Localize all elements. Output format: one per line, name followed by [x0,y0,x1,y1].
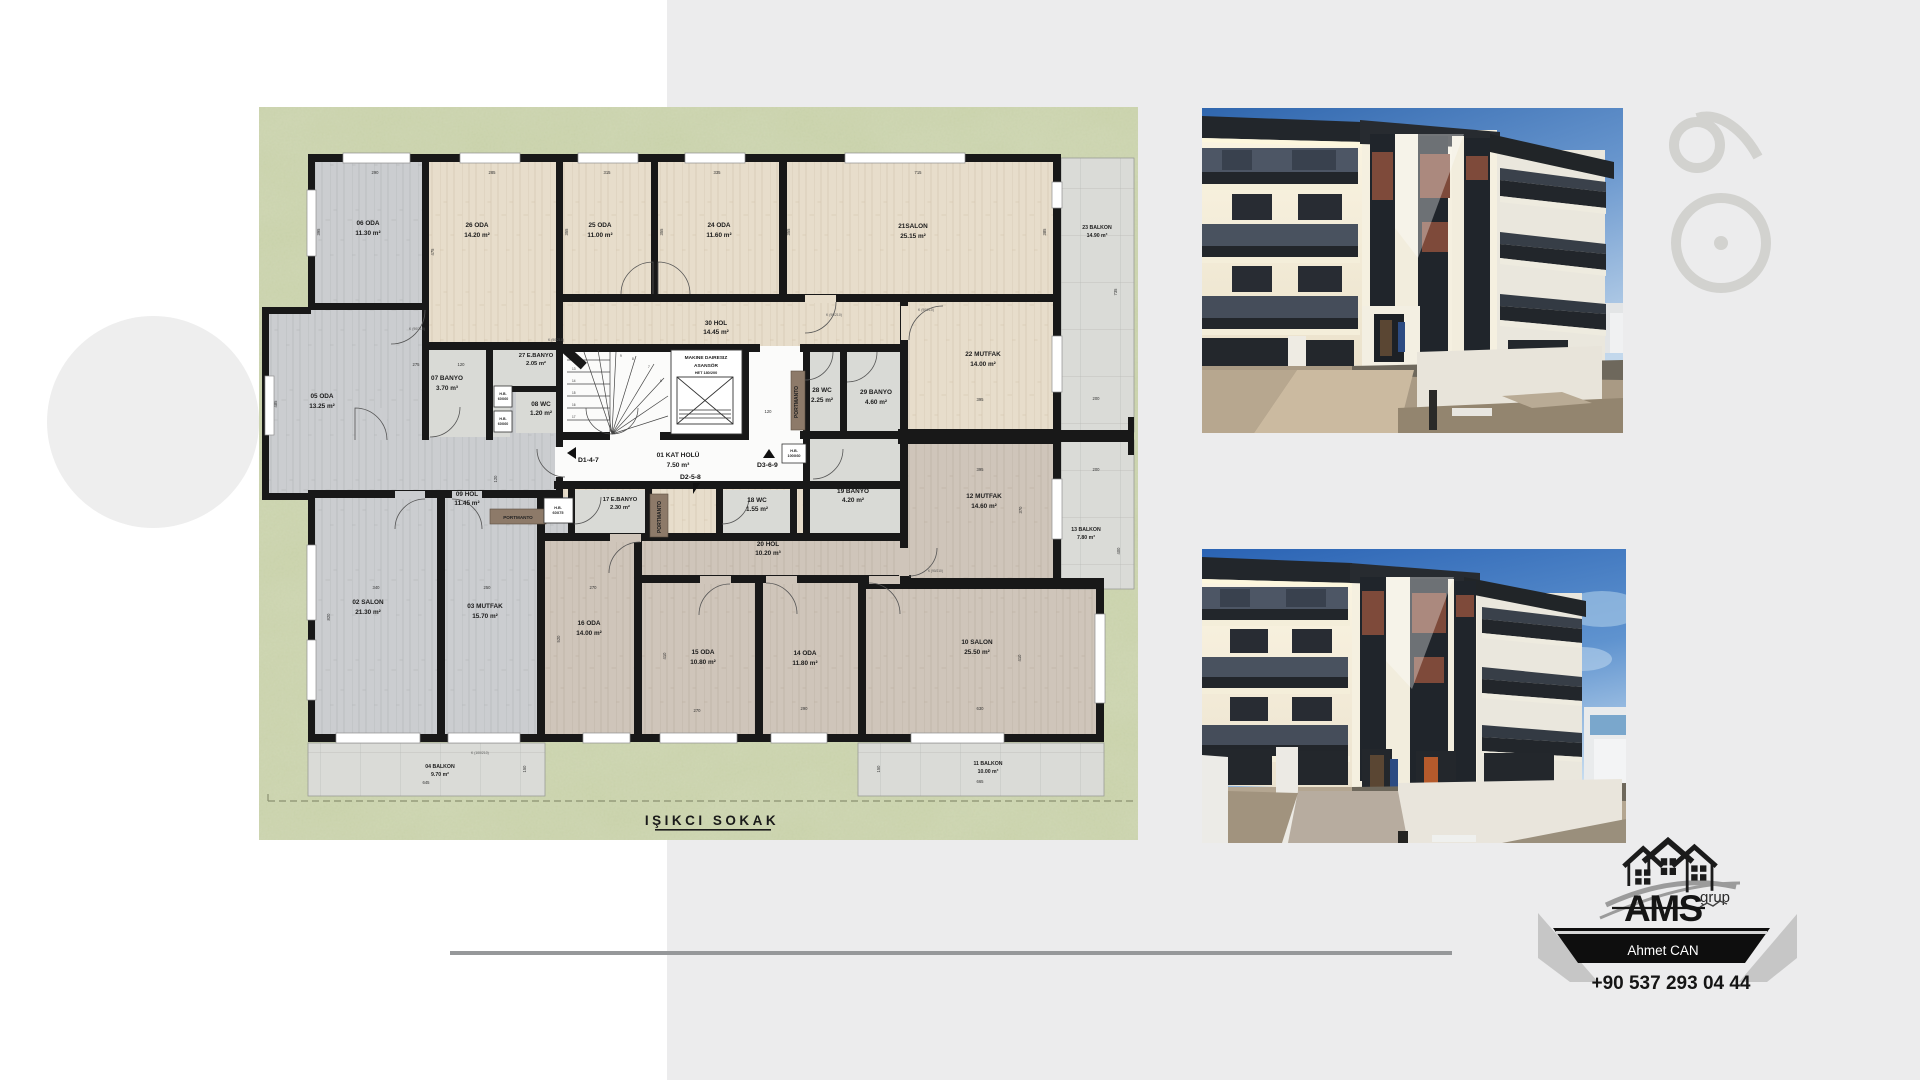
svg-text:14.00 m²: 14.00 m² [970,361,996,368]
svg-text:16 ODA: 16 ODA [577,620,600,627]
svg-text:7: 7 [648,365,650,369]
svg-text:26 ODA: 26 ODA [465,222,488,229]
svg-text:7.50 m³: 7.50 m³ [667,462,691,469]
svg-text:4.60 m²: 4.60 m² [865,399,887,406]
svg-text:395: 395 [316,228,321,236]
svg-text:335: 335 [714,170,722,175]
svg-text:2.25 m²: 2.25 m² [811,397,833,404]
svg-text:K (100/210): K (100/210) [471,751,489,755]
svg-text:13.25 m²: 13.25 m² [309,403,335,410]
svg-text:15 ODA: 15 ODA [691,649,714,656]
svg-text:07 BANYO: 07 BANYO [431,375,463,382]
svg-text:60X60: 60X60 [498,422,508,426]
svg-text:20 HOL: 20 HOL [757,541,779,548]
svg-text:14.90 m³: 14.90 m³ [1087,233,1108,239]
svg-text:09 HOL: 09 HOL [456,491,478,498]
svg-text:10.20 m³: 10.20 m³ [755,550,781,557]
svg-text:340: 340 [373,585,381,590]
svg-text:H.B.: H.B. [499,417,506,421]
svg-text:9.70 m²: 9.70 m² [431,772,449,778]
svg-text:410: 410 [662,652,667,660]
svg-text:H.B.: H.B. [499,392,506,396]
svg-text:14.45 m²: 14.45 m² [703,329,729,336]
svg-text:27 E.BANYO: 27 E.BANYO [519,353,554,359]
svg-text:2.30 m²: 2.30 m² [610,504,630,511]
svg-text:11.00 m²: 11.00 m² [587,232,612,239]
svg-text:IŞIKCI SOKAK: IŞIKCI SOKAK [645,813,779,828]
svg-text:10 SALON: 10 SALON [961,639,993,646]
svg-text:17 E.BANYO: 17 E.BANYO [603,497,638,503]
svg-text:150: 150 [876,765,881,773]
svg-text:355: 355 [786,228,791,236]
svg-text:200: 200 [1093,467,1101,472]
svg-text:11.45 m²: 11.45 m² [454,500,479,507]
svg-text:485: 485 [273,400,278,408]
svg-text:11 BALKON: 11 BALKON [973,761,1002,767]
svg-text:385: 385 [1042,228,1047,236]
svg-text:8: 8 [632,357,634,361]
svg-text:30 HOL: 30 HOL [705,320,727,327]
svg-text:355: 355 [659,228,664,236]
svg-text:11.30 m²: 11.30 m² [355,230,380,237]
svg-text:10.00 m³: 10.00 m³ [978,769,999,775]
svg-text:18 WC: 18 WC [747,497,767,504]
svg-text:24 ODA: 24 ODA [707,222,730,229]
svg-text:01 KAT HOLÜ: 01 KAT HOLÜ [657,450,700,459]
svg-text:02 SALON: 02 SALON [352,599,384,606]
svg-text:15: 15 [572,391,576,395]
svg-text:10.80 m²: 10.80 m² [690,659,716,666]
svg-text:285: 285 [489,170,497,175]
svg-text:21SALON: 21SALON [898,223,928,230]
svg-text:H.B.: H.B. [554,506,562,510]
svg-text:6: 6 [660,379,662,383]
svg-text:120: 120 [458,362,466,367]
svg-text:06 ODA: 06 ODA [356,220,379,227]
svg-text:MAKINE DAIRESIZ: MAKINE DAIRESIZ [685,355,728,361]
svg-text:1.55 m²: 1.55 m² [746,506,768,513]
svg-text:395: 395 [977,467,985,472]
svg-text:17: 17 [572,415,576,419]
svg-text:03 MUTFAK: 03 MUTFAK [467,603,503,610]
svg-text:04 BALKON: 04 BALKON [425,764,455,770]
svg-text:D1-4-7: D1-4-7 [578,457,599,464]
svg-text:475: 475 [430,248,435,256]
svg-text:11.80 m²: 11.80 m² [792,660,817,667]
svg-text:HET 180/200: HET 180/200 [695,371,717,375]
svg-text:PORTMANTO: PORTMANTO [794,386,800,418]
svg-text:100X60: 100X60 [787,454,800,458]
svg-text:200: 200 [1093,396,1101,401]
svg-text:25.50 m²: 25.50 m² [964,649,990,656]
svg-text:270: 270 [694,708,702,713]
svg-text:K (90/210): K (90/210) [918,308,934,312]
svg-text:+90 537 293 04 44: +90 537 293 04 44 [1591,973,1750,994]
svg-text:19 BANYO: 19 BANYO [837,488,869,495]
svg-text:290: 290 [801,706,809,711]
svg-text:21.30 m²: 21.30 m² [355,609,381,616]
svg-text:250: 250 [484,585,492,590]
svg-text:355: 355 [564,228,569,236]
svg-text:290: 290 [372,170,380,175]
svg-text:Ahmet CAN: Ahmet CAN [1627,943,1698,958]
svg-text:D3-6-9: D3-6-9 [757,462,778,469]
svg-text:13 BALKON: 13 BALKON [1071,527,1101,533]
svg-text:22 MUTFAK: 22 MUTFAK [965,351,1001,358]
svg-text:715: 715 [915,170,923,175]
svg-text:28 WC: 28 WC [812,387,832,394]
svg-text:14.20 m²: 14.20 m² [464,232,490,239]
svg-text:16: 16 [572,403,576,407]
svg-text:12 MUTFAK: 12 MUTFAK [966,493,1002,500]
svg-text:PORTMANTO: PORTMANTO [657,501,663,533]
svg-text:410: 410 [1017,654,1022,662]
svg-text:820: 820 [326,613,331,621]
svg-text:13: 13 [572,367,576,371]
svg-text:3.70 m³: 3.70 m³ [436,385,458,392]
svg-text:120: 120 [765,409,773,414]
svg-text:665: 665 [977,779,985,784]
svg-text:15.70 m²: 15.70 m² [472,613,498,620]
svg-text:1.20 m²: 1.20 m² [530,410,552,417]
svg-text:735: 735 [1113,288,1118,296]
svg-text:120: 120 [493,475,498,483]
svg-text:29 BANYO: 29 BANYO [860,389,892,396]
svg-text:395: 395 [977,397,985,402]
svg-text:370: 370 [1018,506,1023,514]
svg-text:7.80 m³: 7.80 m³ [1077,535,1095,541]
svg-text:14.00 m²: 14.00 m² [576,630,602,637]
svg-text:9: 9 [620,354,622,358]
svg-text:150: 150 [522,765,527,773]
svg-text:11.60 m²: 11.60 m² [706,232,731,239]
svg-text:4.20 m²: 4.20 m² [842,497,864,504]
svg-text:645: 645 [423,780,431,785]
svg-text:270: 270 [590,585,598,590]
svg-text:D2-5-8: D2-5-8 [680,474,701,481]
svg-text:K (90/210): K (90/210) [928,569,943,573]
svg-text:520: 520 [556,635,561,643]
svg-text:400: 400 [1116,547,1121,555]
svg-text:630: 630 [977,706,985,711]
svg-text:05 ODA: 05 ODA [310,393,333,400]
svg-text:ASANSÖR: ASANSÖR [694,362,719,369]
svg-text:2.05 m²: 2.05 m² [526,360,546,367]
svg-text:K (90/210): K (90/210) [409,327,425,331]
svg-text:25.15 m²: 25.15 m² [900,233,926,240]
svg-text:K (90/210): K (90/210) [548,338,564,342]
svg-text:23 BALKON: 23 BALKON [1082,225,1112,231]
svg-text:14: 14 [572,379,576,383]
svg-text:H.B.: H.B. [790,449,798,453]
svg-text:PORTMANTO: PORTMANTO [503,515,533,520]
svg-text:25 ODA: 25 ODA [588,222,611,229]
svg-text:60X75: 60X75 [553,511,564,515]
svg-text:275: 275 [413,362,421,367]
svg-text:60X60: 60X60 [498,397,508,401]
svg-text:14.60 m²: 14.60 m² [971,503,997,510]
svg-text:14 ODA: 14 ODA [793,650,816,657]
svg-text:315: 315 [604,170,612,175]
svg-text:08 WC: 08 WC [531,401,551,408]
